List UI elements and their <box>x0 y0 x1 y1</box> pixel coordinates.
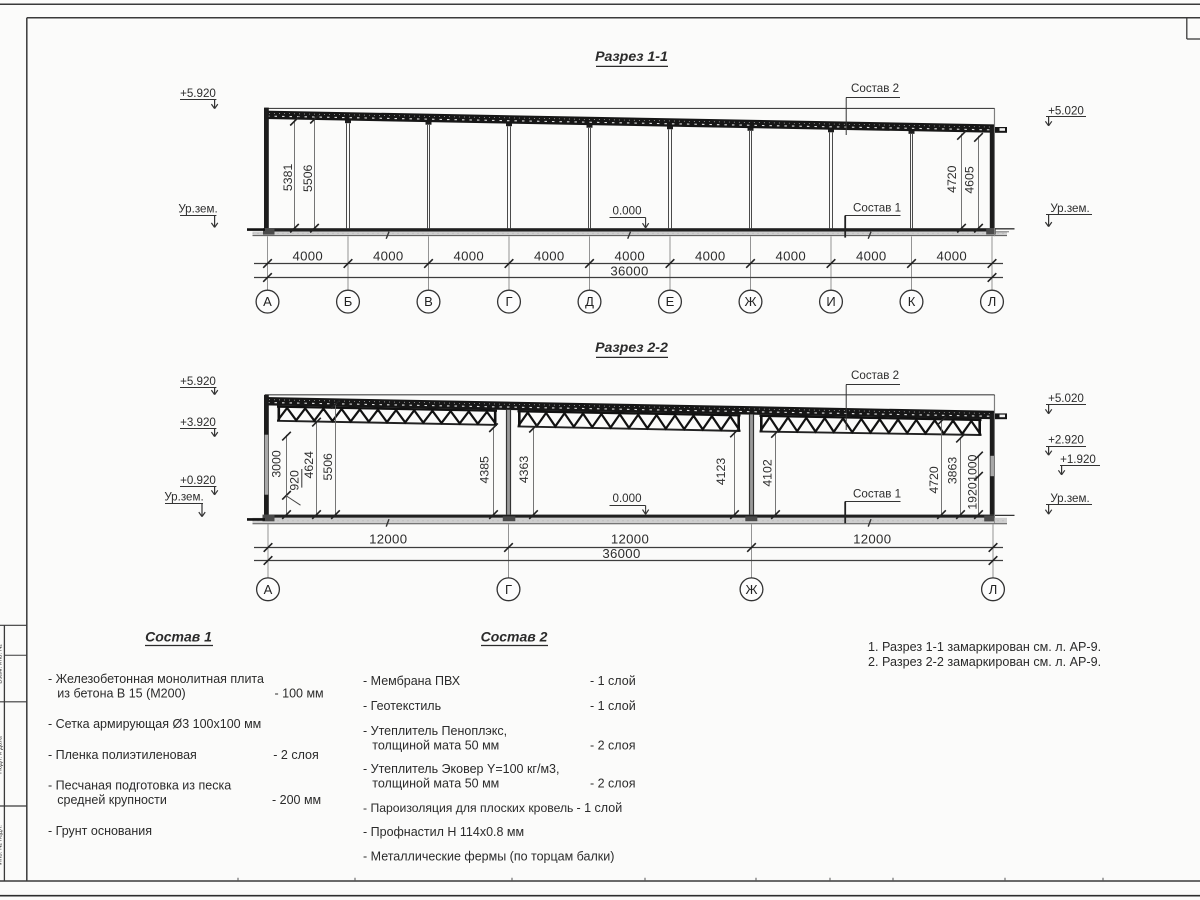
svg-text:4000: 4000 <box>936 249 967 264</box>
svg-text:Ур.зем.: Ур.зем. <box>1050 202 1089 215</box>
svg-text:920: 920 <box>288 470 302 491</box>
svg-text:- 1 слой: - 1 слой <box>577 801 623 815</box>
svg-text:- Пленка полиэтиленовая: - Пленка полиэтиленовая <box>48 748 197 762</box>
svg-text:12000: 12000 <box>611 532 649 547</box>
svg-text:- Пароизоляция для плоских кро: - Пароизоляция для плоских кровель <box>363 801 573 815</box>
svg-text:- Геотекстиль: - Геотекстиль <box>363 699 441 713</box>
svg-text:2. Разрез 2-2 замаркирован см.: 2. Разрез 2-2 замаркирован см. л. АР-9. <box>868 655 1101 669</box>
svg-text:Л: Л <box>988 294 997 309</box>
svg-text:Состав 1: Состав 1 <box>853 202 901 215</box>
svg-text:Состав 2: Состав 2 <box>851 82 899 95</box>
svg-text:Е: Е <box>666 294 675 309</box>
svg-text:- Песчаная подготовка из песка: - Песчаная подготовка из песка <box>48 779 231 793</box>
svg-text:- Профнастил Н 114х0.8 мм: - Профнастил Н 114х0.8 мм <box>363 825 524 839</box>
svg-text:+5.920: +5.920 <box>180 375 216 388</box>
svg-text:+1.920: +1.920 <box>1060 453 1096 466</box>
svg-text:+0.920: +0.920 <box>180 474 216 487</box>
svg-text:толщиной мата 50 мм: толщиной мата 50 мм <box>372 739 499 753</box>
svg-text:Г: Г <box>505 582 512 597</box>
svg-text:4000: 4000 <box>373 249 404 264</box>
svg-text:0.000: 0.000 <box>613 492 642 505</box>
svg-text:- Железобетонная монолитная п: - Железобетонная монолитная плита <box>48 672 264 686</box>
svg-text:5506: 5506 <box>301 164 315 192</box>
svg-text:4000: 4000 <box>292 249 323 264</box>
svg-text:Д: Д <box>585 294 594 309</box>
svg-text:Ур.зем.: Ур.зем. <box>1050 492 1089 505</box>
svg-text:Б: Б <box>344 294 353 309</box>
svg-text:4000: 4000 <box>453 249 484 264</box>
svg-text:Подп. и дата: Подп. и дата <box>0 736 3 774</box>
svg-text:В: В <box>424 294 433 309</box>
svg-text:4624: 4624 <box>302 451 316 479</box>
svg-text:4000: 4000 <box>614 249 645 264</box>
svg-text:4605: 4605 <box>963 166 977 194</box>
svg-text:Состав 2: Состав 2 <box>851 369 899 382</box>
svg-text:- Утеплитель Пеноплэкс,: - Утеплитель Пеноплэкс, <box>363 724 507 738</box>
svg-text:12000: 12000 <box>369 532 407 547</box>
svg-text:+5.020: +5.020 <box>1048 392 1084 405</box>
svg-text:5506: 5506 <box>321 453 335 481</box>
svg-text:- Мембрана ПВХ: - Мембрана ПВХ <box>363 674 461 688</box>
svg-text:- Утеплитель Эковер Y=100 кг/м: - Утеплитель Эковер Y=100 кг/м3, <box>363 762 559 776</box>
svg-text:- 1 слой: - 1 слой <box>590 674 636 688</box>
svg-text:36000: 36000 <box>602 546 640 561</box>
svg-text:Ж: Ж <box>745 582 757 597</box>
svg-text:Состав 2: Состав 2 <box>481 629 548 645</box>
svg-text:4720: 4720 <box>945 165 959 193</box>
svg-text:3863: 3863 <box>946 457 960 485</box>
svg-text:из бетона В 15 (М200): из бетона В 15 (М200) <box>57 687 185 701</box>
svg-text:- 1 слой: - 1 слой <box>590 699 636 713</box>
svg-text:Состав 1: Состав 1 <box>853 488 901 501</box>
svg-text:4363: 4363 <box>517 456 531 484</box>
svg-text:Ур.зем.: Ур.зем. <box>164 490 203 503</box>
svg-text:- 2 слоя: - 2 слоя <box>273 748 318 762</box>
svg-text:12000: 12000 <box>853 532 891 547</box>
svg-text:+5.020: +5.020 <box>1048 104 1084 117</box>
svg-text:А: А <box>263 294 272 309</box>
svg-text:3000: 3000 <box>270 450 284 478</box>
svg-text:4720: 4720 <box>927 466 941 494</box>
svg-text:Ур.зем.: Ур.зем. <box>178 202 217 215</box>
svg-text:толщиной мата 50 мм: толщиной мата 50 мм <box>372 777 499 791</box>
svg-text:1000: 1000 <box>966 454 980 482</box>
svg-text:4000: 4000 <box>775 249 806 264</box>
svg-text:- Сетка армирующая Ø3 100х100: - Сетка армирующая Ø3 100х100 мм <box>48 717 261 731</box>
svg-text:+2.920: +2.920 <box>1048 434 1084 447</box>
svg-text:4385: 4385 <box>478 456 492 484</box>
svg-text:1920: 1920 <box>966 482 980 510</box>
svg-text:1. Разрез 1-1 замаркирован см.: 1. Разрез 1-1 замаркирован см. л. АР-9. <box>868 640 1101 654</box>
svg-text:Разрез 2-2: Разрез 2-2 <box>595 340 668 356</box>
svg-text:- Металлические фермы (по торц: - Металлические фермы (по торцам балки) <box>363 849 614 863</box>
svg-text:4102: 4102 <box>760 459 774 487</box>
svg-text:средней крупности: средней крупности <box>57 793 167 807</box>
svg-text:К: К <box>908 294 916 309</box>
svg-text:Ж: Ж <box>744 294 756 309</box>
svg-text:4000: 4000 <box>856 249 887 264</box>
svg-text:Инв. № подл.: Инв. № подл. <box>0 825 3 865</box>
svg-text:4000: 4000 <box>695 249 726 264</box>
svg-text:Л: Л <box>989 582 998 597</box>
svg-text:- 2 слоя: - 2 слоя <box>590 739 635 753</box>
svg-text:Состав 1: Состав 1 <box>145 629 212 645</box>
svg-text:- 200 мм: - 200 мм <box>272 793 321 807</box>
svg-text:5381: 5381 <box>281 164 295 192</box>
svg-text:36000: 36000 <box>610 263 648 278</box>
svg-text:И: И <box>826 294 835 309</box>
svg-text:Разрез 1-1: Разрез 1-1 <box>595 49 668 65</box>
svg-text:Взам. инв. №: Взам. инв. № <box>0 644 3 684</box>
svg-text:А: А <box>264 582 273 597</box>
svg-text:- Грунт основания: - Грунт основания <box>48 824 152 838</box>
svg-text:4123: 4123 <box>714 458 728 486</box>
svg-text:+3.920: +3.920 <box>180 416 216 429</box>
svg-text:0.000: 0.000 <box>613 204 642 217</box>
svg-text:+5.920: +5.920 <box>180 87 216 100</box>
svg-text:Г: Г <box>505 294 512 309</box>
svg-text:- 2 слоя: - 2 слоя <box>590 777 635 791</box>
svg-text:- 100 мм: - 100 мм <box>275 687 324 701</box>
svg-text:4000: 4000 <box>534 249 565 264</box>
